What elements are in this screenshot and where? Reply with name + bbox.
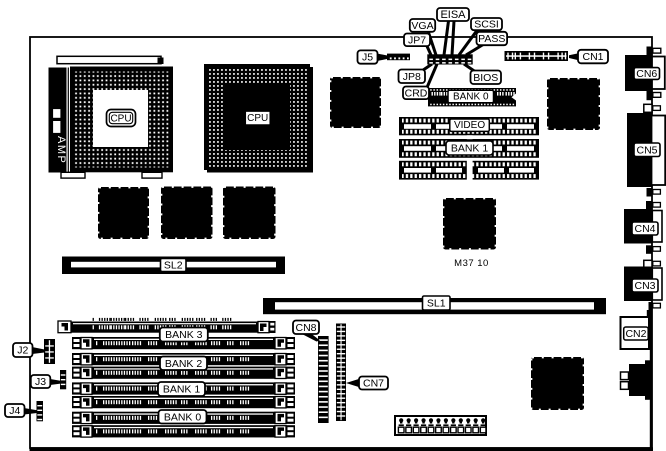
svg-text:CN3: CN3	[634, 280, 655, 292]
svg-text:VGA: VGA	[411, 20, 433, 32]
svg-text:JP7: JP7	[408, 34, 426, 46]
svg-text:BANK 0: BANK 0	[453, 92, 489, 103]
svg-text:BANK 1: BANK 1	[451, 143, 489, 155]
svg-text:CN7: CN7	[363, 378, 384, 390]
svg-text:BANK 0: BANK 0	[164, 411, 202, 423]
svg-text:VIDEO: VIDEO	[454, 120, 485, 131]
svg-text:BANK 2: BANK 2	[165, 358, 203, 370]
svg-text:PASS: PASS	[478, 33, 505, 45]
svg-text:CRD: CRD	[405, 87, 428, 99]
svg-text:J5: J5	[362, 52, 373, 64]
svg-text:BANK 1: BANK 1	[163, 384, 201, 396]
svg-text:BIOS: BIOS	[473, 72, 498, 84]
svg-text:SCSI: SCSI	[474, 19, 499, 31]
svg-text:CN1: CN1	[582, 51, 603, 63]
svg-text:CN6: CN6	[636, 68, 657, 80]
svg-text:CN2: CN2	[625, 328, 646, 340]
svg-text:CN8: CN8	[295, 322, 316, 334]
svg-text:J3: J3	[35, 376, 46, 388]
svg-text:J2: J2	[17, 345, 28, 357]
svg-text:EISA: EISA	[440, 9, 466, 21]
svg-text:JP8: JP8	[403, 71, 421, 83]
svg-text:CPU: CPU	[247, 113, 268, 124]
svg-text:CN4: CN4	[634, 223, 655, 235]
svg-text:M37 10: M37 10	[454, 258, 489, 269]
svg-text:CN5: CN5	[636, 144, 657, 156]
svg-text:AMP: AMP	[55, 136, 67, 164]
svg-text:J4: J4	[9, 405, 20, 417]
svg-text:SL1: SL1	[427, 298, 446, 310]
svg-text:CPU: CPU	[110, 114, 131, 125]
svg-text:BANK 3: BANK 3	[165, 329, 203, 341]
svg-text:SL2: SL2	[164, 260, 183, 272]
